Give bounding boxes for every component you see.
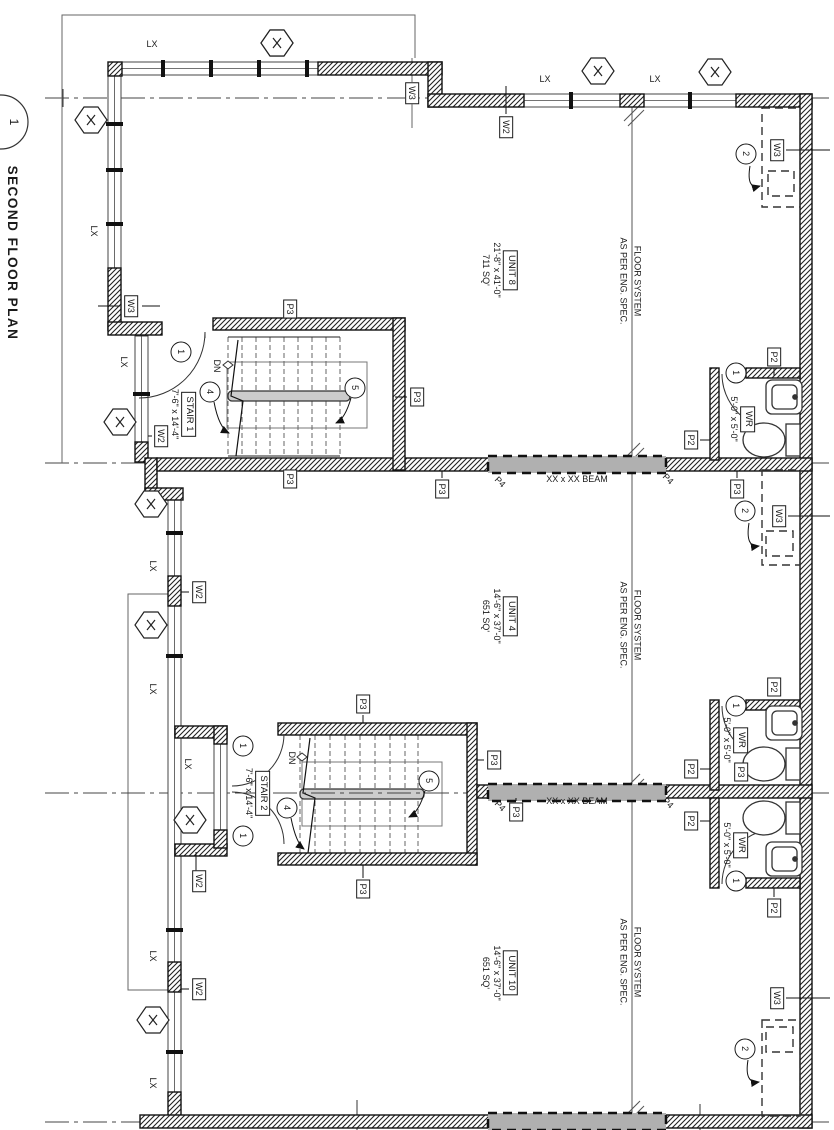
stair1-treads xyxy=(227,337,367,456)
beams xyxy=(488,456,666,1130)
unit-area: 651 SQ' xyxy=(480,600,490,632)
wall-tag-p3: P3 xyxy=(356,694,370,713)
grid-ticks xyxy=(63,89,700,1130)
unit-name: UNIT 4 xyxy=(503,596,518,636)
washroom-label: WR 5'-0" x 5'-0" xyxy=(722,717,748,762)
wall-tag-lx: LX xyxy=(148,683,158,694)
dn-label: DN xyxy=(212,360,222,373)
ref-bubble-4: 4 xyxy=(277,798,298,819)
unit8-label: UNIT 8 21'-8" x 41'-0" 711 SQ' xyxy=(480,242,518,297)
washroom-name: WR xyxy=(740,406,755,432)
stair-name: STAIR 1 xyxy=(181,391,196,436)
unit-name: UNIT 8 xyxy=(503,250,518,290)
floor-system-note: FLOOR SYSTEM AS PER ENG. SPEC. xyxy=(617,918,644,1005)
unit-area: 651 SQ' xyxy=(480,957,490,989)
toilet-wr3 xyxy=(743,801,800,835)
beam-callout: XX x XX BEAM xyxy=(546,796,608,806)
wall-tag-w3: W3 xyxy=(405,82,419,104)
wall-tag-w2: W2 xyxy=(154,425,168,447)
wall-tag-p2: P2 xyxy=(767,347,781,366)
plan-linework xyxy=(0,0,834,1130)
chases xyxy=(762,108,800,1116)
ref-bubble-2: 2 xyxy=(735,1039,756,1060)
washroom-name: WR xyxy=(733,727,748,753)
wall-tag-p3: P3 xyxy=(356,879,370,898)
dn-markers xyxy=(223,361,307,761)
wall-tag-lx: LX xyxy=(148,1077,158,1088)
unit4-label: UNIT 4 14'-6" x 37'-0" 651 SQ' xyxy=(480,588,518,643)
floor-system-note: FLOOR SYSTEM AS PER ENG. SPEC. xyxy=(617,237,644,324)
ref-bubble-4: 4 xyxy=(200,382,221,403)
wall-tag-lx: LX xyxy=(148,560,158,571)
wall-tag-lx: LX xyxy=(119,356,129,367)
wall-tag-w3: W3 xyxy=(124,295,138,317)
washroom-name: WR xyxy=(733,832,748,858)
ref-bubble-1: 1 xyxy=(726,363,747,384)
ref-bubble-2: 2 xyxy=(736,144,757,165)
wall-tag-w2: W2 xyxy=(192,581,206,603)
wall-tag-p3: P3 xyxy=(487,750,501,769)
toilet-wr2 xyxy=(743,747,800,781)
unit-dims: 14'-6" x 37'-0" xyxy=(492,588,502,643)
wall-tag-p3: P3 xyxy=(435,479,449,498)
title-bubble-number: 1 xyxy=(6,119,20,126)
ref-bubble-1: 1 xyxy=(233,826,254,847)
wall-tag-w2: W2 xyxy=(499,116,513,138)
wall-tag-p2: P2 xyxy=(684,759,698,778)
wall-tag-p3: P3 xyxy=(509,802,523,821)
ref-bubble-5: 5 xyxy=(345,378,366,399)
wall-tag-p3: P3 xyxy=(734,762,748,781)
ref-bubble-1: 1 xyxy=(171,342,192,363)
wall-tag-w3: W3 xyxy=(770,139,784,161)
wall-tag-w3: W3 xyxy=(770,987,784,1009)
wall-tag-p3: P3 xyxy=(730,479,744,498)
wall-tag-w3: W3 xyxy=(772,505,786,527)
wall-tag-p3: P3 xyxy=(283,299,297,318)
floor-system-note-line1: FLOOR SYSTEM xyxy=(630,918,644,1005)
sink-wr1 xyxy=(766,380,802,414)
unit10-label: UNIT 10 14'-6" x 37'-0" 651 SQ' xyxy=(480,945,518,1000)
floor-system-note: FLOOR SYSTEM AS PER ENG. SPEC. xyxy=(617,581,644,668)
wall-tag-lx: LX xyxy=(89,225,99,236)
dn-label: DN xyxy=(287,752,297,765)
beam-callout: XX x XX BEAM xyxy=(546,474,608,484)
wall-tag-p2: P2 xyxy=(684,430,698,449)
ref-bubble-1: 1 xyxy=(726,696,747,717)
wall-tag-lx: LX xyxy=(183,758,193,769)
wall-tag-p2: P2 xyxy=(767,898,781,917)
ref-bubble-5: 5 xyxy=(419,771,440,792)
unit-area: 711 SQ' xyxy=(480,254,490,286)
grid-lines xyxy=(45,98,834,1122)
stair1-label: STAIR 1 7'-6" x 14'-4" xyxy=(170,389,196,439)
washroom-dims: 5'-0" x 5'-0" xyxy=(722,717,732,762)
wall-tag-lx: LX xyxy=(148,950,158,961)
wall-tag-p2: P2 xyxy=(684,811,698,830)
sheet-title: SECOND FLOOR PLAN xyxy=(4,166,20,341)
unit-dims: 21'-8" x 41'-0" xyxy=(492,242,502,297)
washroom-label: WR 5'-0" x 5'-0" xyxy=(722,822,748,867)
floor-system-note-line1: FLOOR SYSTEM xyxy=(630,237,644,324)
ref-bubble-1: 1 xyxy=(726,871,747,892)
washroom-fixtures xyxy=(743,380,802,876)
stair-dims: 7'-6" x 14'-4" xyxy=(170,389,180,439)
unit-dims: 14'-6" x 37'-0" xyxy=(492,945,502,1000)
stair2-label: STAIR 2 7'-6" x 14'-4" xyxy=(244,768,270,818)
door-swings xyxy=(139,332,777,884)
floor-system-note-line2: AS PER ENG. SPEC. xyxy=(617,581,631,668)
wall-tag-lx: LX xyxy=(539,74,550,84)
washroom-label: WR 5'-0" x 5'-0" xyxy=(729,396,755,441)
wall-tag-p3: P3 xyxy=(283,469,297,488)
walls xyxy=(108,62,812,1128)
wall-tag-w2: W2 xyxy=(192,870,206,892)
floor-plan-sheet: SECOND FLOOR PLAN 1 LX LX LX LX LX LX LX… xyxy=(0,0,834,1130)
leaders xyxy=(98,86,830,1082)
wall-tag-p3: P3 xyxy=(410,387,424,406)
washroom-dims: 5'-0" x 5'-0" xyxy=(722,822,732,867)
stair-dims: 7'-6" x 14'-4" xyxy=(244,768,254,818)
ref-bubble-2: 2 xyxy=(735,501,756,522)
wall-tag-lx: LX xyxy=(146,39,157,49)
sink-wr2 xyxy=(766,706,802,740)
stair-name: STAIR 2 xyxy=(255,770,270,815)
floor-system-note-line2: AS PER ENG. SPEC. xyxy=(617,918,631,1005)
ref-bubble-1: 1 xyxy=(233,736,254,757)
sink-wr3 xyxy=(766,842,802,876)
wall-tag-p2: P2 xyxy=(767,677,781,696)
stair2-treads xyxy=(300,735,442,853)
wall-tag-w2: W2 xyxy=(192,978,206,1000)
wall-tag-lx: LX xyxy=(649,74,660,84)
unit-name: UNIT 10 xyxy=(503,950,518,995)
floor-system-note-line1: FLOOR SYSTEM xyxy=(630,581,644,668)
floor-system-note-line2: AS PER ENG. SPEC. xyxy=(617,237,631,324)
washroom-dims: 5'-0" x 5'-0" xyxy=(729,396,739,441)
